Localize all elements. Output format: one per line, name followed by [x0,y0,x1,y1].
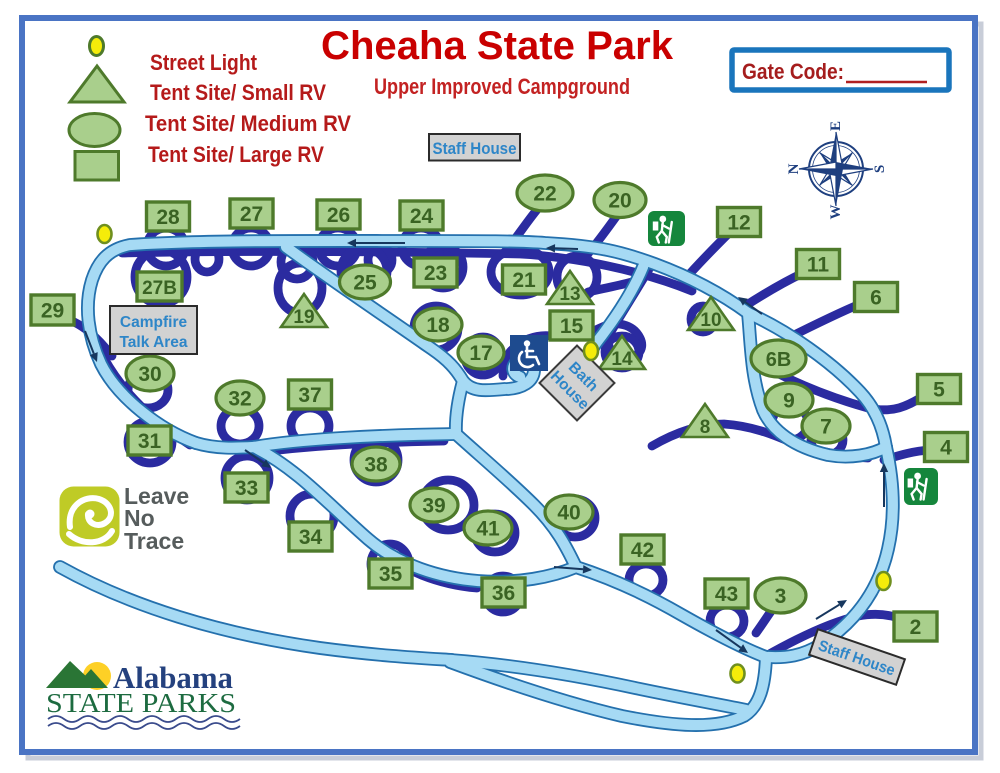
svg-text:Talk Area: Talk Area [119,334,187,351]
svg-text:20: 20 [608,190,631,213]
svg-text:27: 27 [240,203,263,226]
svg-text:8: 8 [700,417,711,438]
svg-text:E: E [828,121,844,131]
svg-text:39: 39 [422,495,445,518]
svg-text:Cheaha State Park: Cheaha State Park [321,24,674,68]
svg-text:43: 43 [715,583,738,606]
svg-text:34: 34 [299,526,323,549]
svg-text:6: 6 [870,287,882,310]
svg-text:12: 12 [727,212,750,235]
svg-text:37: 37 [298,384,321,407]
svg-text:Tent Site/ Medium RV: Tent Site/ Medium RV [145,111,351,136]
svg-text:Upper Improved Campground: Upper Improved Campground [374,74,630,99]
svg-text:17: 17 [469,342,492,365]
svg-text:Gate Code:: Gate Code: [742,59,844,84]
svg-text:13: 13 [559,284,580,305]
svg-text:5: 5 [933,379,945,402]
svg-text:28: 28 [156,206,180,229]
svg-text:N: N [786,163,802,174]
svg-text:25: 25 [353,272,377,295]
svg-text:14: 14 [611,349,633,370]
svg-text:21: 21 [512,269,536,292]
svg-text:24: 24 [410,205,434,228]
svg-text:41: 41 [476,518,500,541]
svg-text:4: 4 [940,437,952,460]
svg-text:38: 38 [364,454,388,477]
svg-text:2: 2 [910,616,922,639]
svg-text:22: 22 [533,183,556,206]
svg-text:40: 40 [557,502,580,525]
svg-text:Tent Site/ Small RV: Tent Site/ Small RV [150,80,326,105]
svg-text:W: W [828,205,844,220]
svg-text:S: S [872,165,888,173]
svg-text:15: 15 [560,315,584,338]
svg-text:Trace: Trace [124,528,184,554]
svg-text:18: 18 [426,314,450,337]
svg-text:42: 42 [631,539,654,562]
svg-text:7: 7 [820,416,832,439]
svg-text:29: 29 [41,300,64,323]
svg-text:Staff House: Staff House [433,139,517,158]
svg-text:11: 11 [807,254,830,277]
svg-text:26: 26 [327,204,350,227]
svg-text:23: 23 [424,262,447,285]
svg-text:3: 3 [775,585,787,608]
svg-text:Street Light: Street Light [150,50,258,75]
svg-text:Tent Site/ Large RV: Tent Site/ Large RV [148,142,324,167]
svg-text:27B: 27B [142,278,177,299]
svg-text:32: 32 [228,388,251,411]
svg-text:30: 30 [138,363,161,386]
svg-text:31: 31 [138,430,162,453]
svg-text:STATE PARKS: STATE PARKS [46,688,236,718]
svg-text:9: 9 [783,390,795,413]
svg-text:10: 10 [700,310,721,331]
svg-text:33: 33 [235,477,258,500]
svg-text:6B: 6B [766,349,792,371]
svg-text:Campfire: Campfire [120,314,188,331]
svg-text:36: 36 [492,582,515,605]
svg-text:19: 19 [293,307,314,328]
svg-text:35: 35 [379,563,403,586]
